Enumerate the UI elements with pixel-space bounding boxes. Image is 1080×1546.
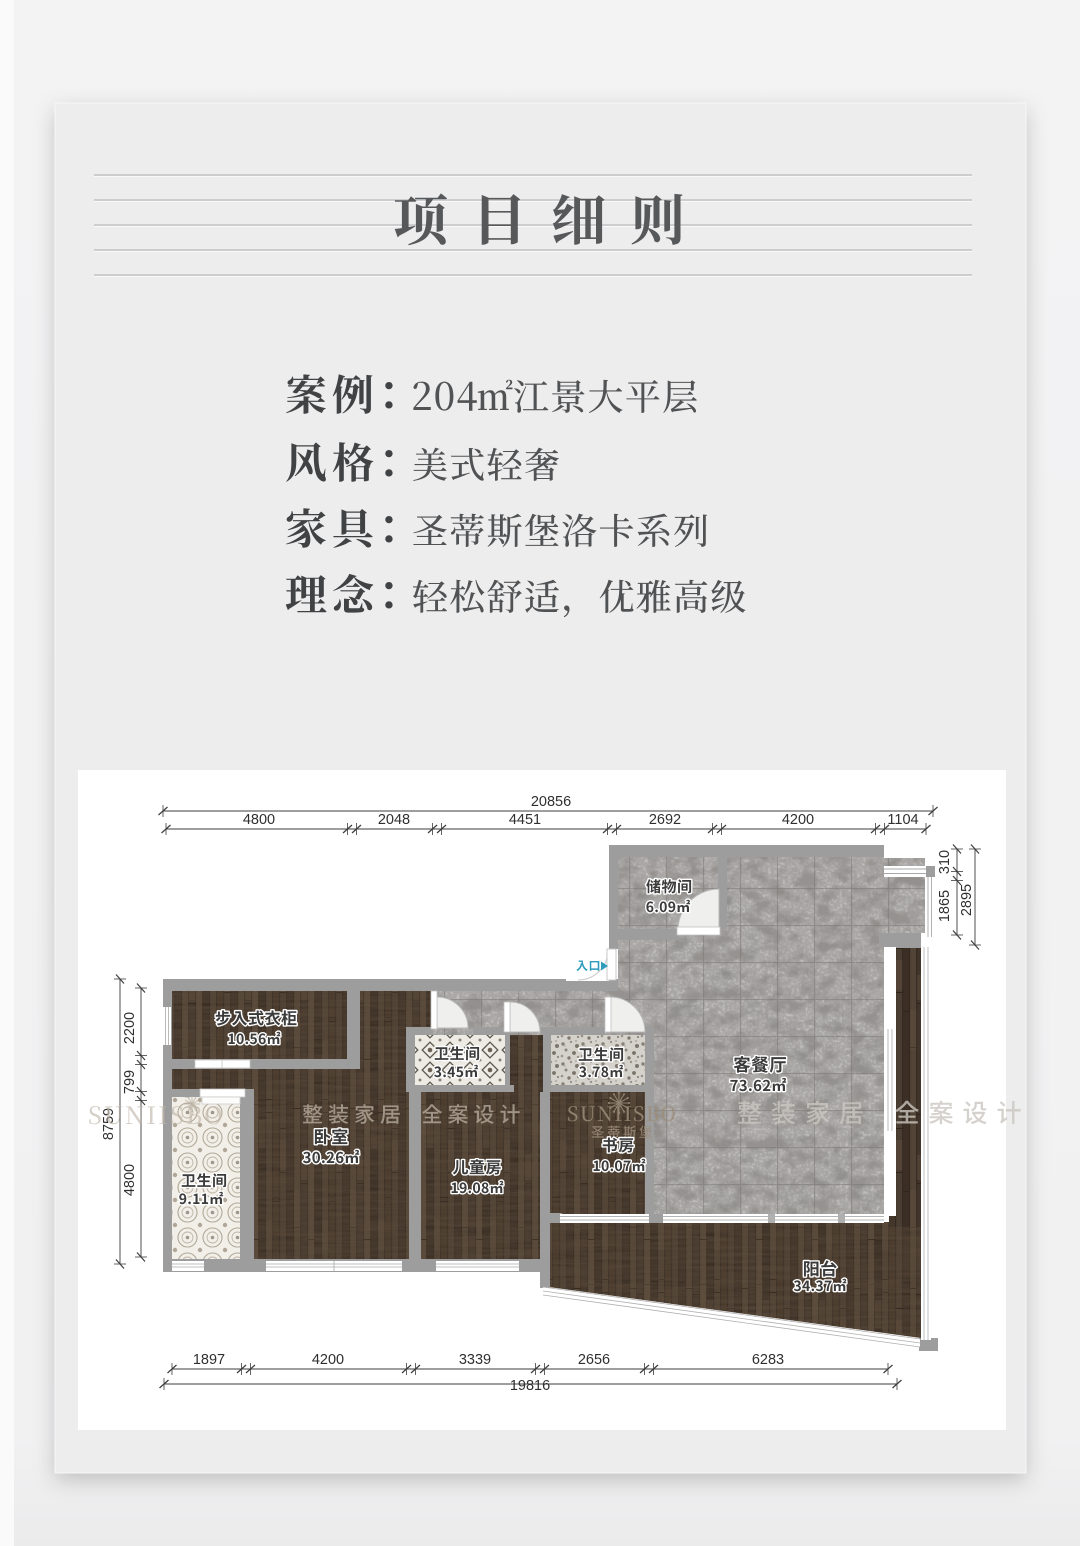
svg-text:19816: 19816 bbox=[510, 1378, 550, 1394]
svg-text:799: 799 bbox=[122, 1070, 138, 1094]
svg-text:6283: 6283 bbox=[752, 1352, 784, 1368]
svg-text:2200: 2200 bbox=[122, 1012, 138, 1044]
svg-text:310: 310 bbox=[937, 850, 953, 874]
svg-text:3339: 3339 bbox=[459, 1352, 491, 1368]
svg-text:1865: 1865 bbox=[937, 890, 953, 922]
svg-text:1104: 1104 bbox=[887, 812, 918, 828]
svg-text:4451: 4451 bbox=[509, 812, 541, 828]
svg-text:2048: 2048 bbox=[378, 812, 410, 828]
svg-text:20856: 20856 bbox=[531, 794, 571, 810]
svg-text:2656: 2656 bbox=[578, 1352, 610, 1368]
svg-text:2895: 2895 bbox=[959, 884, 975, 916]
svg-text:2692: 2692 bbox=[649, 812, 681, 828]
svg-text:1897: 1897 bbox=[193, 1352, 225, 1368]
svg-text:4800: 4800 bbox=[122, 1164, 138, 1196]
svg-text:4200: 4200 bbox=[312, 1352, 344, 1368]
svg-text:4200: 4200 bbox=[782, 812, 814, 828]
svg-text:4800: 4800 bbox=[243, 812, 275, 828]
